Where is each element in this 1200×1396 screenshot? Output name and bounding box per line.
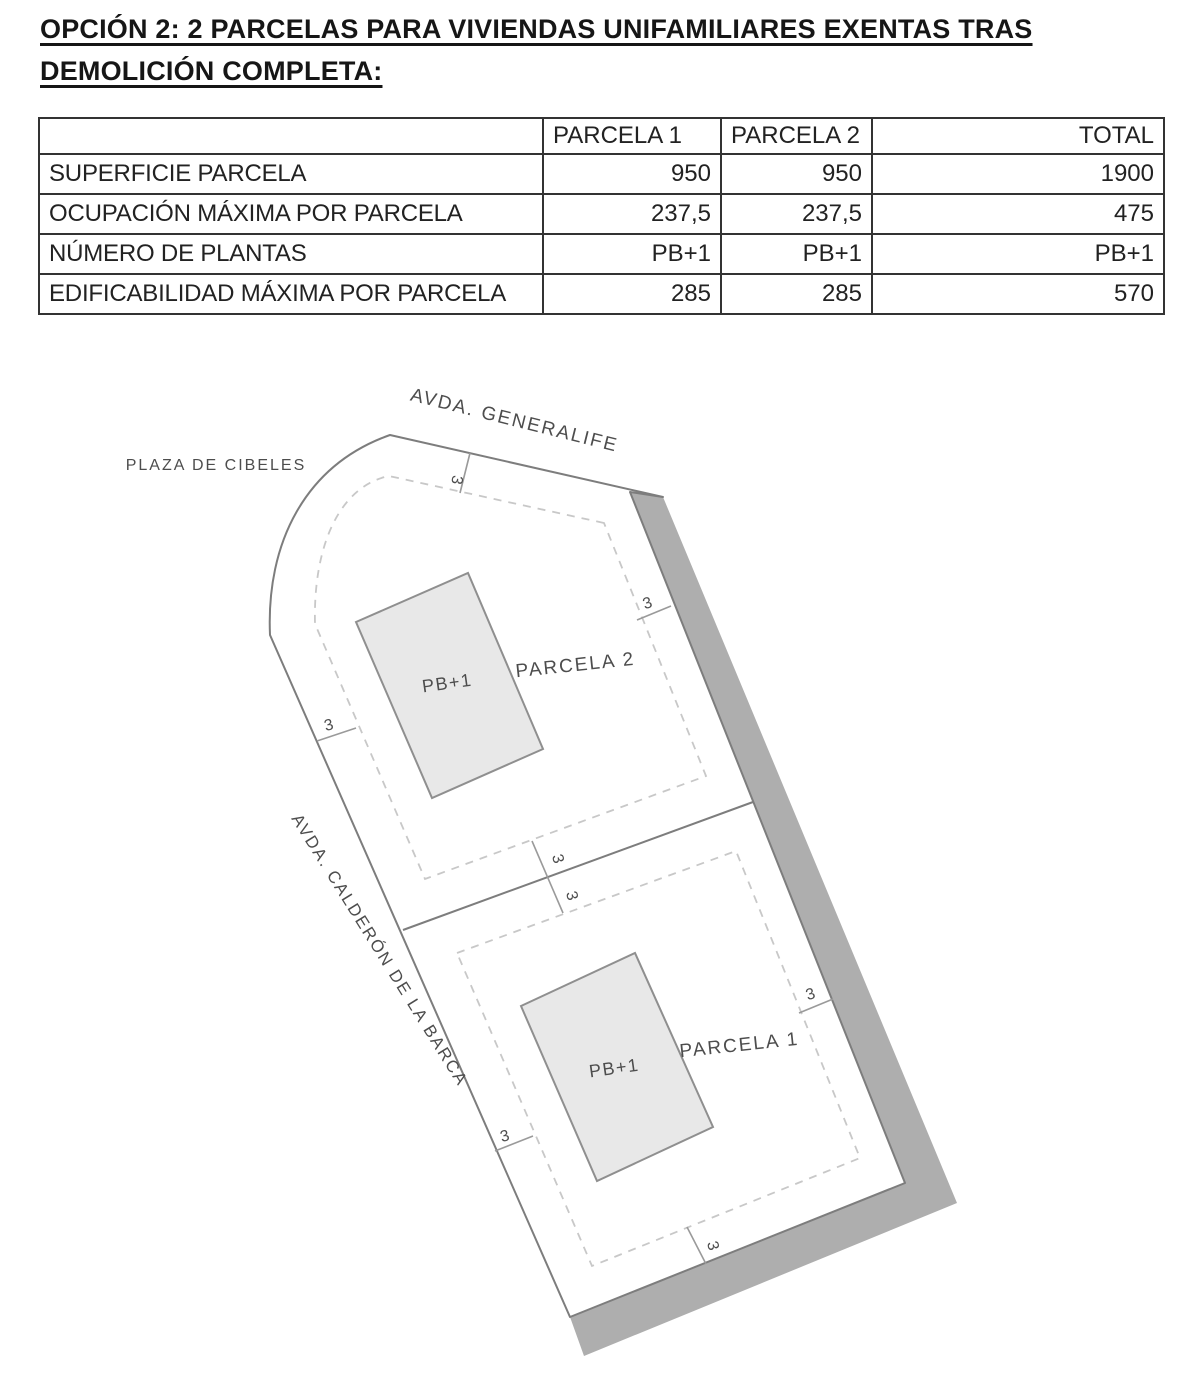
- value-parcela-2: 950: [721, 154, 872, 194]
- value-total: 475: [872, 194, 1164, 234]
- document-title-line-1: OPCIÓN 2: 2 PARCELAS PARA VIVIENDAS UNIF…: [40, 14, 1033, 44]
- parameters-table: PARCELA 1 PARCELA 2 TOTAL SUPERFICIE PAR…: [38, 117, 1165, 315]
- dimension-tick-bottom: [687, 1227, 706, 1264]
- table-row: OCUPACIÓN MÁXIMA POR PARCELA 237,5 237,5…: [39, 194, 1164, 234]
- setback-dimension: 3: [498, 1127, 511, 1146]
- value-parcela-2: PB+1: [721, 234, 872, 274]
- column-header-total: TOTAL: [872, 118, 1164, 154]
- column-header-parcela-2: PARCELA 2: [721, 118, 872, 154]
- setback-dimension: 3: [447, 474, 465, 486]
- row-label: EDIFICABILIDAD MÁXIMA POR PARCELA: [39, 274, 543, 314]
- value-parcela-2: 285: [721, 274, 872, 314]
- value-parcela-1: 237,5: [543, 194, 721, 234]
- setback-dimension: 3: [641, 594, 655, 613]
- value-total: PB+1: [872, 234, 1164, 274]
- table-header-row: PARCELA 1 PARCELA 2 TOTAL: [39, 118, 1164, 154]
- table-corner-cell: [39, 118, 543, 154]
- value-parcela-1: PB+1: [543, 234, 721, 274]
- setback-dimension: 3: [322, 716, 335, 735]
- table-row: SUPERFICIE PARCELA 950 950 1900: [39, 154, 1164, 194]
- parcel-1-label: PARCELA 1: [679, 1029, 801, 1062]
- value-parcela-1: 285: [543, 274, 721, 314]
- column-header-parcela-1: PARCELA 1: [543, 118, 721, 154]
- value-total: 570: [872, 274, 1164, 314]
- value-parcela-2: 237,5: [721, 194, 872, 234]
- setback-dimension: 3: [562, 889, 581, 902]
- dimension-tick-top: [460, 453, 470, 493]
- parcel-2-label: PARCELA 2: [515, 649, 637, 682]
- row-label: OCUPACIÓN MÁXIMA POR PARCELA: [39, 194, 543, 234]
- dimension-tick-divider: [532, 841, 563, 913]
- document-title-line-2: DEMOLICIÓN COMPLETA:: [40, 56, 382, 86]
- street-label-calderon: AVDA. CALDERÓN DE LA BARCA: [288, 811, 472, 1090]
- setback-dimension: 3: [804, 985, 818, 1004]
- row-label: NÚMERO DE PLANTAS: [39, 234, 543, 274]
- document-title: OPCIÓN 2: 2 PARCELAS PARA VIVIENDAS UNIF…: [40, 14, 1170, 98]
- table-row: NÚMERO DE PLANTAS PB+1 PB+1 PB+1: [39, 234, 1164, 274]
- parcel-divider: [403, 802, 753, 930]
- dimension-tick-p2-left: [317, 728, 356, 741]
- row-label: SUPERFICIE PARCELA: [39, 154, 543, 194]
- value-total: 1900: [872, 154, 1164, 194]
- site-plan: AVDA. GENERALIFE PLAZA DE CIBELES AVDA. …: [0, 380, 1200, 1396]
- setback-dimension: 3: [703, 1239, 722, 1252]
- value-parcela-1: 950: [543, 154, 721, 194]
- document-page: OPCIÓN 2: 2 PARCELAS PARA VIVIENDAS UNIF…: [0, 0, 1200, 1396]
- table-row: EDIFICABILIDAD MÁXIMA POR PARCELA 285 28…: [39, 274, 1164, 314]
- plaza-label-cibeles: PLAZA DE CIBELES: [126, 457, 307, 474]
- dimension-tick-p2-right: [637, 606, 671, 620]
- sidewalk-band: [570, 492, 957, 1356]
- setback-dimension: 3: [548, 852, 567, 865]
